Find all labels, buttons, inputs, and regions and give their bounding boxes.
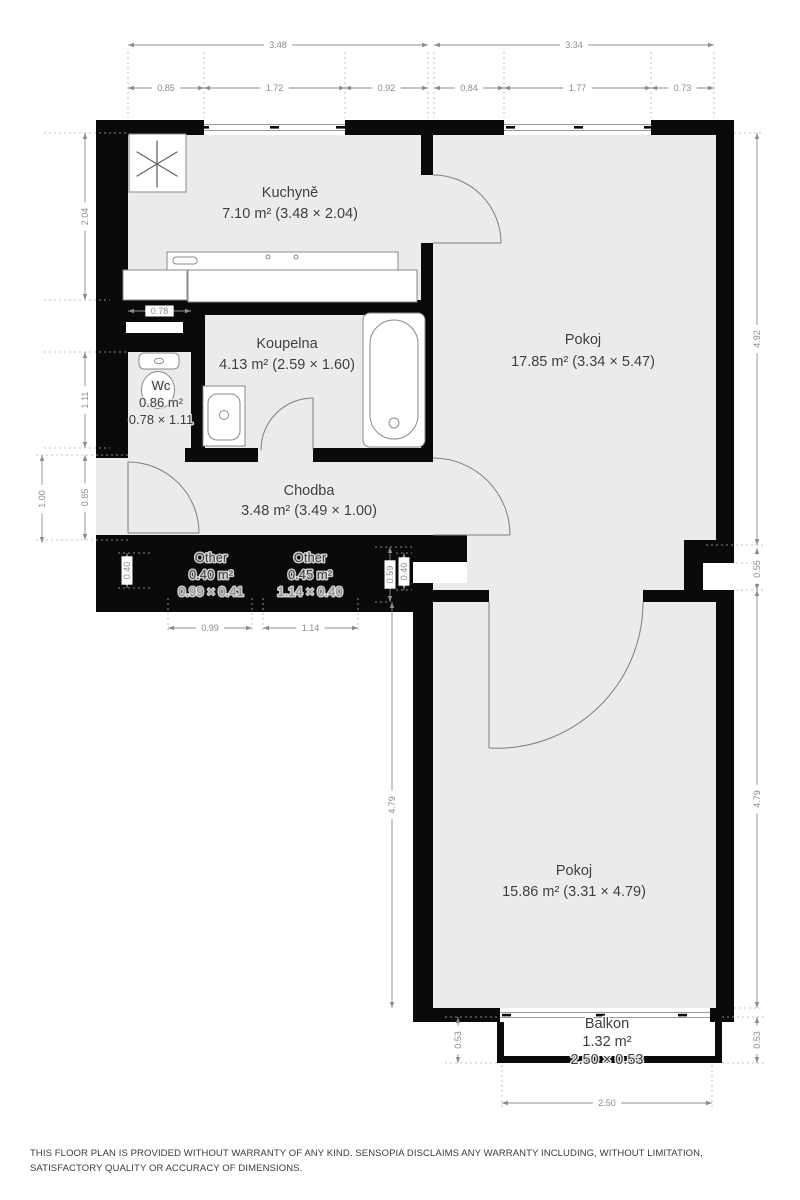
dimension-label: 1.14 [302, 623, 320, 633]
dimension-label: 0.92 [378, 83, 396, 93]
room-name: Other [294, 550, 327, 565]
dimension-label: 0.40 [122, 562, 132, 580]
room-measurements: 0.78 × 1.11 [129, 412, 193, 427]
dimension-label: 3.34 [565, 40, 583, 50]
dimension: 3.34 [434, 40, 714, 51]
dimension: 3.48 [128, 40, 428, 51]
dimension: 1.11 [80, 352, 91, 448]
dimension-label: 1.00 [37, 490, 47, 508]
room-measurements: 1.32 m² [582, 1034, 631, 1050]
dimension: 4.79 [387, 602, 398, 1008]
kitchen-counter [123, 252, 417, 302]
doorway-kuchyne-pokoj [421, 175, 433, 243]
room-name: Pokoj [565, 332, 601, 348]
room-name: Pokoj [556, 863, 592, 879]
window-kuchyne [200, 120, 345, 135]
dimension: 0.84 [434, 83, 504, 94]
sink-icon [203, 386, 245, 446]
dimension: 0.85 [128, 83, 204, 94]
room-measurements: 0.99 × 0.41 [178, 584, 243, 599]
room-measurements: 4.13 m² (2.59 × 1.60) [219, 357, 355, 373]
dimension-label: 0.59 [385, 566, 395, 584]
niche-wc [126, 322, 183, 333]
dimension-label: 0.55 [752, 560, 762, 578]
dimension-label: 0.78 [151, 306, 169, 316]
dimension-label: 4.92 [752, 330, 762, 348]
dimension: 1.14 [263, 623, 358, 634]
room-measurements: 0.45 m² [288, 567, 333, 582]
dimension: 1.77 [504, 83, 651, 94]
window-pokoj [504, 120, 653, 135]
room-name: Other [195, 550, 228, 565]
dimension: 0.40 [399, 553, 410, 590]
room-measurements: 17.85 m² (3.34 × 5.47) [511, 354, 655, 370]
notch-right [703, 563, 734, 590]
doorway-koupelna [258, 448, 313, 462]
dimension: 4.79 [752, 590, 763, 1008]
room-name: Kuchyně [262, 185, 318, 201]
dimension: 4.92 [752, 133, 763, 545]
dimension-label: 4.79 [387, 796, 397, 814]
room-measurements: 3.48 m² (3.49 × 1.00) [241, 503, 377, 519]
room-measurements: 7.10 m² (3.48 × 2.04) [222, 206, 358, 222]
dimension: 0.40 [122, 553, 133, 588]
room-name: Chodba [284, 483, 336, 499]
dimension-label: 0.85 [157, 83, 175, 93]
dimension: 0.53 [752, 1017, 763, 1063]
dimension: 0.99 [168, 623, 252, 634]
bathtub-icon [363, 313, 425, 447]
room-name: Koupelna [256, 336, 318, 352]
dimension-label: 0.85 [80, 489, 90, 507]
dimension: 0.53 [453, 1017, 464, 1063]
room-measurements: 2.50 × 0.53 [571, 1052, 644, 1068]
dimension-label: 0.53 [752, 1031, 762, 1049]
dimension-label: 2.50 [598, 1098, 616, 1108]
room-name: Wc [152, 378, 171, 393]
dimension: 1.00 [37, 455, 48, 543]
dimension-label: 0.40 [399, 563, 409, 581]
dimension: 1.72 [204, 83, 345, 94]
dimension: 2.50 [502, 1098, 712, 1109]
dimension-label: 1.72 [266, 83, 284, 93]
doorway-wc [126, 448, 185, 462]
floor-pokoj-dolni [433, 590, 716, 1008]
floor-plan-page: 3.480.851.720.923.340.841.770.732.041.11… [0, 0, 800, 1200]
dimension: 0.55 [752, 548, 763, 590]
dimension-label: 0.73 [674, 83, 692, 93]
fridge-icon [129, 134, 186, 192]
room-measurements: 1.14 × 0.40 [277, 584, 342, 599]
room-measurements: 15.86 m² (3.31 × 4.79) [502, 884, 646, 900]
dimension-label: 3.48 [269, 40, 287, 50]
disclaimer-text: THIS FLOOR PLAN IS PROVIDED WITHOUT WARR… [30, 1147, 775, 1176]
dimension-label: 4.79 [752, 790, 762, 808]
room-name: Balkon [585, 1016, 629, 1032]
dimension: 0.85 [80, 455, 91, 540]
dimension: 0.73 [651, 83, 714, 94]
dimension-label: 0.53 [453, 1031, 463, 1049]
floor-plan-drawing: 3.480.851.720.923.340.841.770.732.041.11… [0, 0, 800, 1200]
notch-left [413, 562, 467, 583]
dimension-label: 0.99 [201, 623, 219, 633]
dimension: 0.92 [345, 83, 428, 94]
floor-chodba [128, 460, 433, 535]
room-measurements: 0.40 m² [189, 567, 234, 582]
dimension: 2.04 [80, 133, 91, 300]
dimension-label: 2.04 [80, 208, 90, 226]
doorway-chodba-pokoj [421, 455, 433, 535]
room-measurements: 0.86 m² [139, 395, 184, 410]
dimension-label: 0.84 [460, 83, 478, 93]
floor-entry-recess [96, 458, 128, 538]
dimension-label: 1.77 [569, 83, 587, 93]
dimension-label: 1.11 [80, 392, 90, 409]
